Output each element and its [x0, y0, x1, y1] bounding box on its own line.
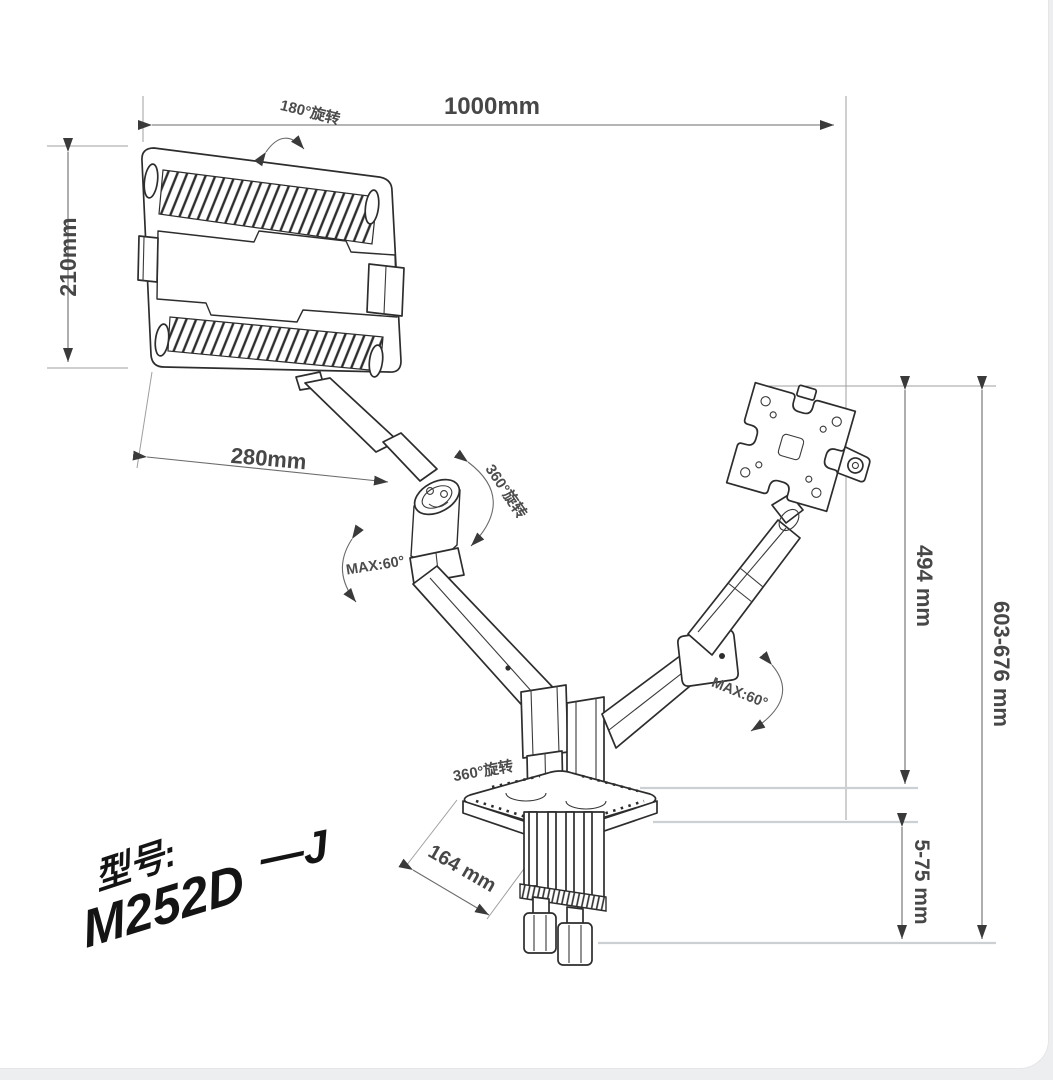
- dim-clamp-range: 5-75 mm: [902, 827, 933, 939]
- dim-label-tray-height: 210mm: [55, 217, 81, 296]
- clamp-bar: [529, 812, 537, 886]
- dim-base-depth: 164 mm: [413, 841, 500, 915]
- anno-arm-rotation: 360°旋转: [468, 461, 531, 546]
- clamp-bar: [548, 812, 556, 890]
- dim-label-base-depth: 164 mm: [424, 841, 500, 897]
- vesa-top-screw: [796, 385, 816, 401]
- dimension-diagram: 1000mm 180°旋转 210mm 280mm 360°旋转 MAX:60°…: [0, 0, 1053, 1080]
- dim-upper-arm: 280mm: [147, 443, 388, 482]
- anno-base-rotation: 360°旋转: [452, 757, 515, 785]
- tray-clip-left: [138, 236, 158, 282]
- thumb-screw-left: [524, 913, 556, 953]
- clamp-bar: [584, 812, 592, 896]
- dim-pole-height: 494 mm: [905, 390, 937, 784]
- dim-label-pole-height: 494 mm: [912, 545, 937, 627]
- anno-label-max-tilt-right: MAX:60°: [709, 675, 770, 712]
- dim-tray-height: 210mm: [55, 152, 81, 362]
- anno-tray-rotation: 180°旋转: [266, 96, 342, 152]
- anno-max-tilt-left: MAX:60°: [342, 539, 406, 602]
- elbow-cylinder-top: [409, 472, 465, 521]
- thumb-screw-right: [558, 923, 592, 965]
- dim-label-total-height: 603-676 mm: [989, 601, 1014, 727]
- dim-label-clamp-range: 5-75 mm: [910, 839, 933, 924]
- upper-arm-rod: [383, 433, 437, 481]
- anno-label-tray-rotation: 180°旋转: [278, 96, 342, 128]
- laptop-tray: [138, 148, 404, 378]
- right-arm: [567, 494, 803, 814]
- desk-clamp-base: [463, 771, 657, 965]
- left-post-block: [521, 685, 568, 758]
- handwritten-model-note: 型号: M252D —J: [79, 821, 332, 960]
- vesa-plate: [727, 373, 885, 519]
- dim-label-width-total: 1000mm: [444, 93, 540, 120]
- anno-label-max-tilt-left: MAX:60°: [345, 554, 406, 579]
- clamp-bar: [566, 812, 574, 893]
- anno-label-arm-rotation: 360°旋转: [482, 461, 531, 522]
- anno-label-base-rotation: 360°旋转: [452, 757, 515, 785]
- dim-label-upper-arm: 280mm: [230, 443, 308, 475]
- model-suffix: —J: [257, 821, 332, 885]
- gas-spring-arm: [688, 520, 800, 655]
- left-arm: [296, 372, 568, 803]
- dim-width-total: 1000mm: [152, 93, 834, 125]
- dim-total-height: 603-676 mm: [982, 390, 1014, 939]
